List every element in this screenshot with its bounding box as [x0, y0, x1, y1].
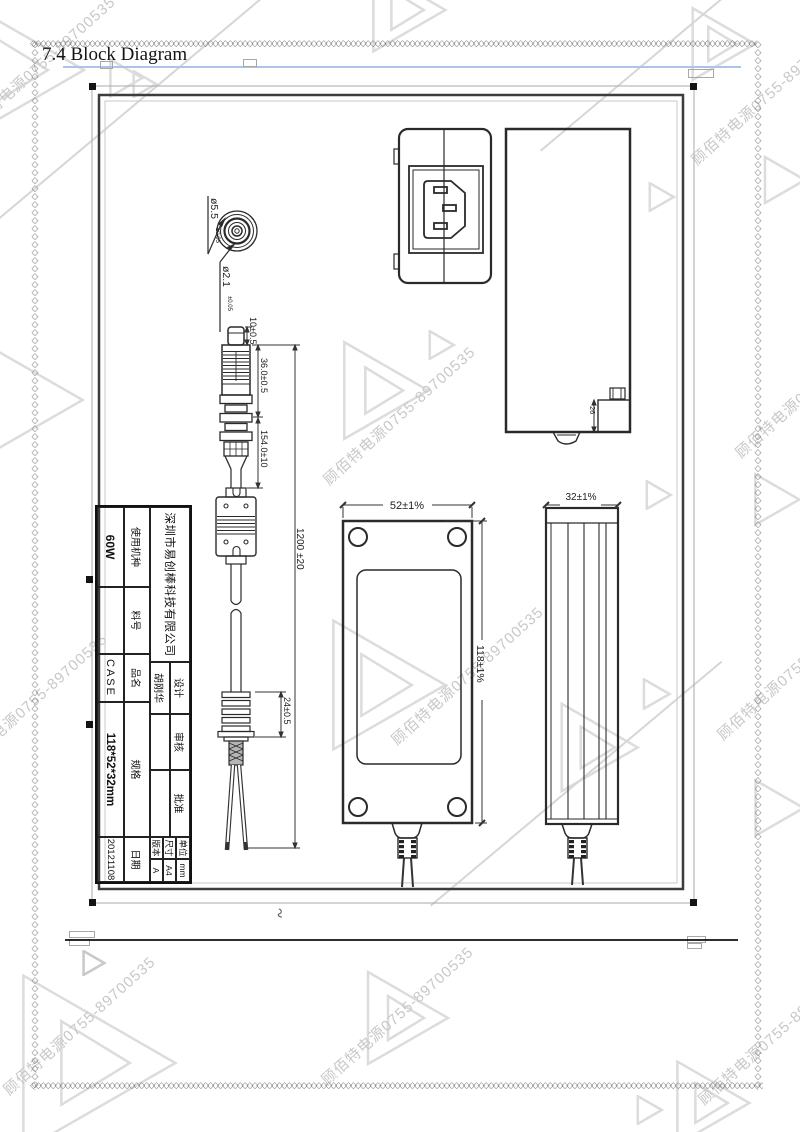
dim-plug-outer-tol: ±0.05 — [214, 228, 220, 244]
front-view-dimensions — [340, 502, 487, 826]
title-block-spec-label: 规格 — [124, 702, 150, 837]
dim-strain-relief-length: 24±0.5 — [282, 697, 292, 724]
dim-jack-detail: 26 — [588, 406, 597, 414]
title-block-part-label: 料号 — [124, 587, 150, 654]
title-block-design-label: 设计 — [170, 662, 190, 714]
title-block-review-label: 审核 — [170, 714, 190, 770]
title-block-date-value: 20121108 — [97, 837, 124, 882]
title-block-model-value: 60W — [97, 507, 124, 587]
title-block-company: 深圳市易创棒科技有限公司 — [150, 507, 190, 662]
title-block: 深圳市易创棒科技有限公司 设计 胡刚华 审核 批准 单位 mm 尺寸 A4 版本… — [95, 505, 192, 884]
dim-plug-outer-dia: ø5.5 — [208, 198, 220, 219]
dim-case-height: 118±1% — [474, 645, 486, 683]
title-block-version-value: A — [150, 859, 163, 882]
dim-case-depth: 32±1% — [565, 492, 596, 503]
title-block-name-value: CASE — [97, 654, 124, 702]
dim-tip-length: 10±0.5 — [248, 317, 258, 344]
dim-cable-length: 1200 ±20 — [294, 528, 305, 570]
dim-plug-overall-length: 154.0±10 — [259, 430, 269, 467]
title-block-unit-value: mm — [176, 859, 190, 882]
cable-dimensions — [245, 327, 300, 848]
title-block-part-value — [97, 587, 124, 654]
adapter-front-view — [343, 521, 472, 887]
title-block-review-value — [150, 714, 170, 770]
title-block-name-label: 品名 — [124, 654, 150, 702]
title-block-unit-label: 单位 — [176, 837, 190, 859]
plug-side-view — [216, 327, 256, 850]
dim-plug-inner-dia: ø2.1 — [220, 266, 232, 287]
dim-case-width: 52±1% — [390, 500, 424, 512]
footer-rule — [65, 909, 738, 940]
dim-plug-body-length: 36.0±0.5 — [259, 358, 269, 393]
title-block-version-label: 版本 — [150, 837, 163, 859]
adapter-top-view — [506, 129, 630, 444]
side-view-dimensions — [543, 502, 621, 518]
title-block-design-value: 胡刚华 — [150, 662, 170, 714]
title-block-model-label: 使用机种 — [124, 507, 150, 587]
title-block-spec-value: 118*52*32mm — [97, 702, 124, 837]
title-block-approve-label: 批准 — [170, 770, 190, 837]
title-block-size-label: 尺寸 — [163, 837, 176, 859]
ac-inlet-view — [394, 129, 491, 283]
document-page: 顾佰特电源0755-89700535 顾佰特电源0755-89700535 顾佰… — [0, 0, 800, 1132]
title-block-date-label: 日期 — [124, 837, 150, 882]
title-block-approve-value — [150, 770, 170, 837]
dim-plug-inner-tol: ±0.05 — [226, 296, 232, 312]
title-block-size-value: A4 — [163, 859, 176, 882]
adapter-side-view — [546, 508, 618, 885]
